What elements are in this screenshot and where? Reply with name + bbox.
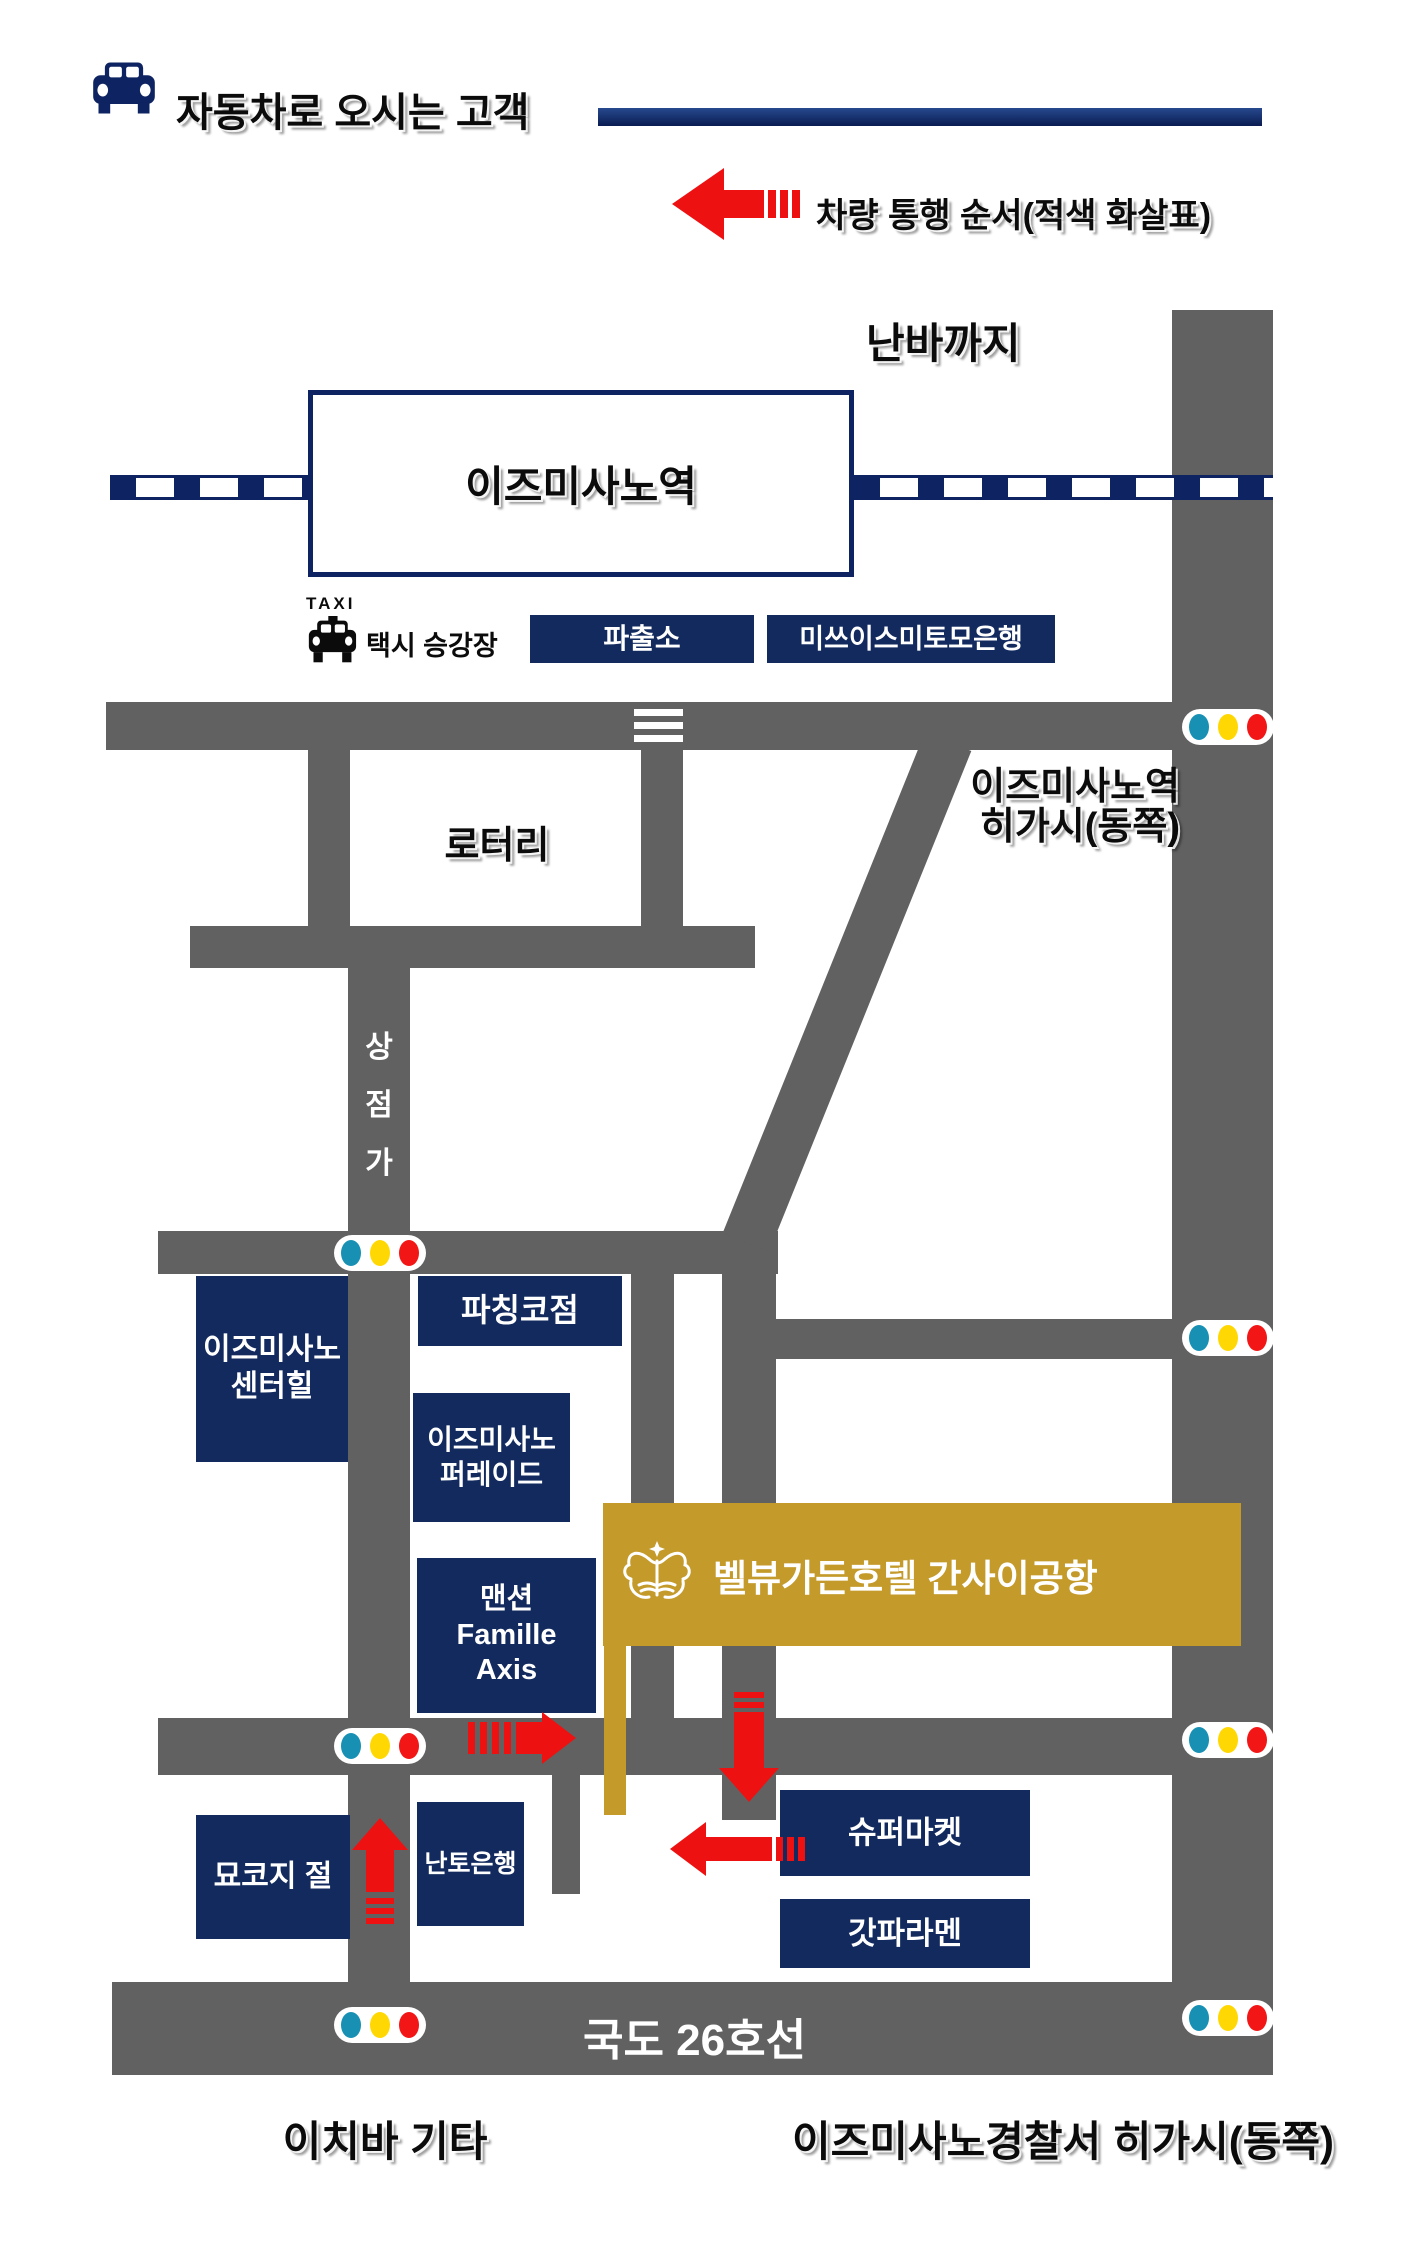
road-right-vertical	[1172, 310, 1273, 2075]
taxi-stand-label: 택시 승강장	[366, 624, 498, 663]
station-box: 이즈미사노역	[308, 390, 854, 577]
label-shopping-street: 상 점 가	[348, 1022, 410, 1182]
traffic-light	[334, 1235, 426, 1271]
route-arrow-left	[670, 1822, 810, 1876]
road-rotary-left	[308, 750, 350, 926]
building-parade: 이즈미사노 퍼레이드	[413, 1393, 570, 1522]
traffic-light	[1182, 1722, 1274, 1758]
road-station-front	[106, 702, 1273, 750]
railway-east	[854, 475, 1273, 500]
car-icon	[90, 60, 158, 121]
road-mid-right-horizontal	[776, 1319, 1172, 1359]
road-second-horizontal	[158, 1231, 778, 1274]
building-pachinko: 파칭코점	[418, 1276, 622, 1346]
legend-label: 차량 통행 순서(적색 화살표)	[816, 188, 1211, 237]
traffic-light	[334, 2007, 426, 2043]
page-title: 자동차로 오시는 고객	[176, 80, 529, 138]
legend-red-arrow	[672, 168, 804, 240]
road-rotary-right	[641, 750, 683, 926]
building-police-box: 파출소	[530, 615, 754, 663]
label-police-east: 이즈미사노경찰서 히가시(동쪽)	[757, 2108, 1369, 2169]
title-rule	[598, 108, 1262, 126]
label-route26: 국도 26호선	[583, 2004, 806, 2068]
station-name: 이즈미사노역	[465, 453, 697, 514]
label-namba: 난바까지	[866, 310, 1021, 371]
traffic-light	[1182, 1320, 1274, 1356]
building-supermarket: 슈퍼마켓	[780, 1790, 1030, 1876]
building-famille-axis: 맨션 Famille Axis	[417, 1558, 596, 1713]
traffic-light	[1182, 2000, 1274, 2036]
road-rotary-bottom	[190, 926, 755, 968]
hotel-crest-icon	[619, 1541, 695, 1608]
hotel-box: 벨뷰가든호텔 간사이공항	[603, 1503, 1241, 1646]
building-center-hill: 이즈미사노 센터힐	[196, 1276, 348, 1462]
label-station-east: 이즈미사노역 히가시(동쪽)	[905, 768, 1180, 847]
railway-west	[110, 475, 308, 500]
traffic-light	[334, 1728, 426, 1764]
hotel-name: 벨뷰가든호텔 간사이공항	[713, 1548, 1098, 1602]
building-myokoji: 묘코지 절	[196, 1815, 350, 1939]
route-arrow-up	[352, 1818, 408, 1926]
route-map: 자동차로 오시는 고객 차량 통행 순서(적색 화살표) 이즈미사노역 TAXI	[0, 0, 1418, 2245]
building-ramen: 갓파라멘	[780, 1899, 1030, 1968]
road-third-horizontal	[158, 1718, 1273, 1775]
road-hotel-west	[631, 1274, 674, 1718]
building-nanto-bank: 난토은행	[417, 1802, 524, 1926]
label-rotary: 로터리	[420, 814, 574, 869]
route-arrow-down	[719, 1692, 779, 1802]
route-arrow-right	[468, 1712, 578, 1764]
taxi-caption: TAXI	[306, 594, 355, 614]
label-ichiba-kita: 이치바 기타	[275, 2108, 495, 2169]
taxi-icon	[306, 616, 358, 671]
building-bank-smbc: 미쓰이스미토모은행	[767, 615, 1055, 663]
railroad-crossing-marks	[634, 709, 683, 742]
road-thin-alley	[552, 1775, 580, 1894]
traffic-light	[1182, 709, 1274, 745]
